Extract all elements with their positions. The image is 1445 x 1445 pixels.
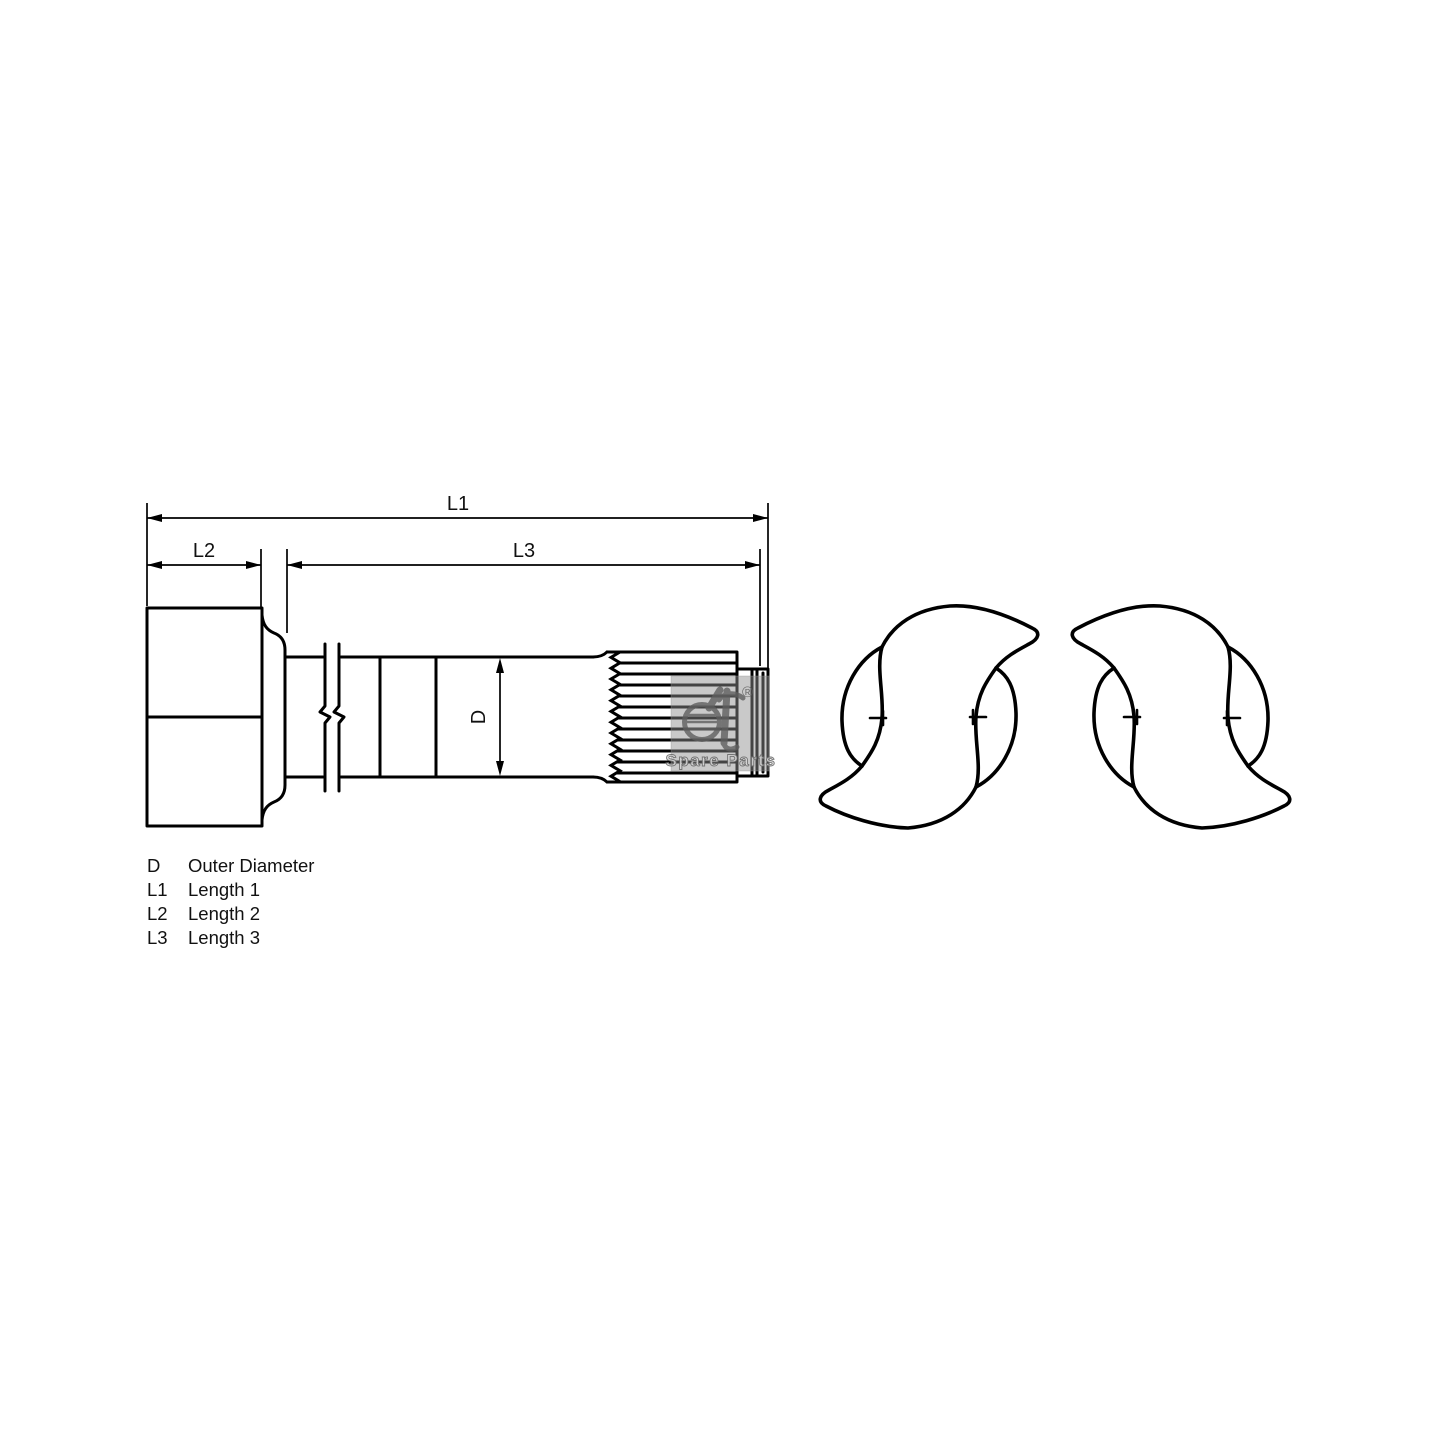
registered-mark: ® — [742, 684, 753, 701]
diagram-canvas: L1 L2 L3 D — [0, 0, 1445, 1445]
legend-symbol: L2 — [147, 903, 168, 924]
legend-meaning: Length 2 — [188, 903, 260, 924]
legend-meaning: Length 1 — [188, 879, 260, 900]
cam-body-outline — [820, 606, 1037, 828]
legend-symbol: L3 — [147, 927, 168, 948]
legend-symbol: L1 — [147, 879, 168, 900]
dim-label-d: D — [468, 710, 490, 724]
arrowhead — [147, 561, 162, 569]
arrowhead — [147, 514, 162, 522]
dim-label-l1: L1 — [447, 493, 469, 515]
dt-logo-t-stem — [724, 691, 727, 743]
legend: D Outer Diameter L1 Length 1 L2 Length 2… — [147, 855, 314, 948]
arrowhead — [496, 761, 504, 776]
spline-fillet-bottom — [593, 777, 607, 782]
legend-meaning: Outer Diameter — [188, 855, 314, 876]
arrowhead — [745, 561, 760, 569]
cam-roller-arc-right — [976, 668, 1016, 787]
arrowhead — [287, 561, 302, 569]
dim-label-l2: L2 — [193, 540, 215, 562]
s-cam-profile-right — [1072, 606, 1289, 828]
arrowhead — [246, 561, 261, 569]
legend-meaning: Length 3 — [188, 927, 260, 948]
break-line — [334, 644, 344, 791]
watermark-caption: Spare Parts — [666, 751, 777, 770]
cam-roller-arc-left — [842, 647, 882, 766]
technical-drawing-page: L1 L2 L3 D — [0, 0, 1445, 1445]
watermark-dt-logo: ® Spare Parts — [666, 676, 777, 771]
spline-fillet-top — [593, 652, 607, 657]
arrowhead — [753, 514, 768, 522]
bearing-collar — [262, 615, 285, 820]
roller-center-mark — [870, 711, 886, 725]
legend-symbol: D — [147, 855, 160, 876]
s-cam-profile-left — [820, 606, 1037, 828]
break-line — [320, 644, 330, 791]
dim-label-l3: L3 — [513, 540, 535, 562]
arrowhead — [496, 658, 504, 673]
